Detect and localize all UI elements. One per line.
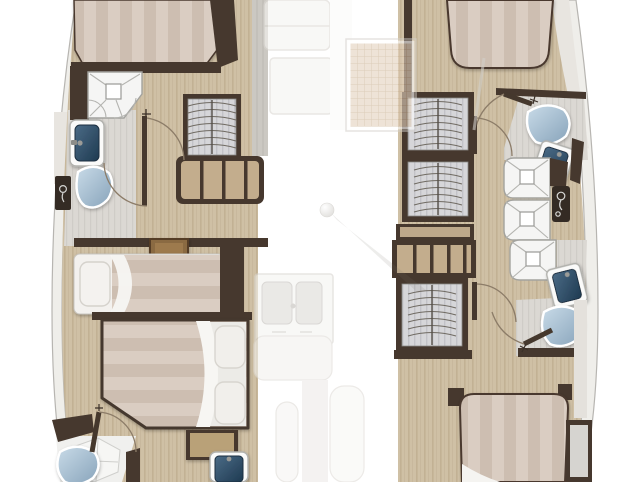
galley-counter: [270, 58, 332, 114]
starboard-side-gray-band: [574, 300, 587, 418]
port-single-berth: [74, 254, 224, 314]
single-berth-end-wall: [220, 246, 244, 316]
starboard-shelved-cabinet: [392, 240, 476, 278]
starboard-mid-wall: [394, 350, 472, 359]
port-hanging-locker: [183, 94, 241, 160]
wall-beside-shower: [550, 158, 568, 186]
mixer-panel: [552, 186, 570, 222]
pillow: [215, 326, 245, 368]
faucet-icon: [71, 140, 77, 145]
starboard-shower-tray-1: [504, 158, 550, 198]
faucet-icon: [227, 457, 232, 462]
pillow: [80, 262, 110, 306]
starboard-forward-toilet: [527, 105, 570, 144]
port-forward-toilet: [77, 167, 113, 208]
door-leaf: [142, 116, 147, 162]
deck-hatch-grid: [349, 42, 413, 128]
port-aft-bed: [102, 320, 248, 428]
door-leaf: [142, 162, 147, 206]
galley-double-sink: [255, 274, 333, 344]
port-shelved-cabinet: [176, 156, 264, 204]
pillow: [215, 382, 245, 424]
starboard-hanging-locker-3: [396, 278, 468, 352]
mast-step-ball: [320, 203, 334, 217]
starboard-shelf-top: [396, 224, 474, 240]
starboard-aft-bed: [460, 394, 568, 482]
faucet-icon: [77, 140, 82, 145]
floor-plan-drawing: [0, 0, 643, 482]
galley-counter-forward: [264, 0, 330, 50]
cockpit-bench: [330, 386, 364, 482]
door-leaf: [472, 282, 477, 320]
faucet-icon: [291, 304, 296, 309]
port-hull: [52, 0, 268, 482]
saloon-seat: [254, 336, 332, 380]
companionway-step: [276, 402, 298, 482]
starboard-forward-bed: [447, 0, 553, 68]
starboard-hull: [392, 0, 592, 482]
port-forward-washbasin: [70, 120, 104, 166]
wall-left-of-shower: [70, 66, 89, 120]
starboard-shower-tray-2: [504, 200, 550, 240]
port-forward-bed: [74, 0, 217, 66]
port-aft-washbasin: [210, 452, 248, 482]
floor-plan-canvas: [0, 0, 643, 482]
cockpit-pale-band: [302, 380, 328, 482]
starboard-side-cabinet: [566, 420, 592, 482]
port-aft-wall-2: [126, 448, 140, 482]
starboard-hanging-locker-2: [402, 156, 474, 222]
